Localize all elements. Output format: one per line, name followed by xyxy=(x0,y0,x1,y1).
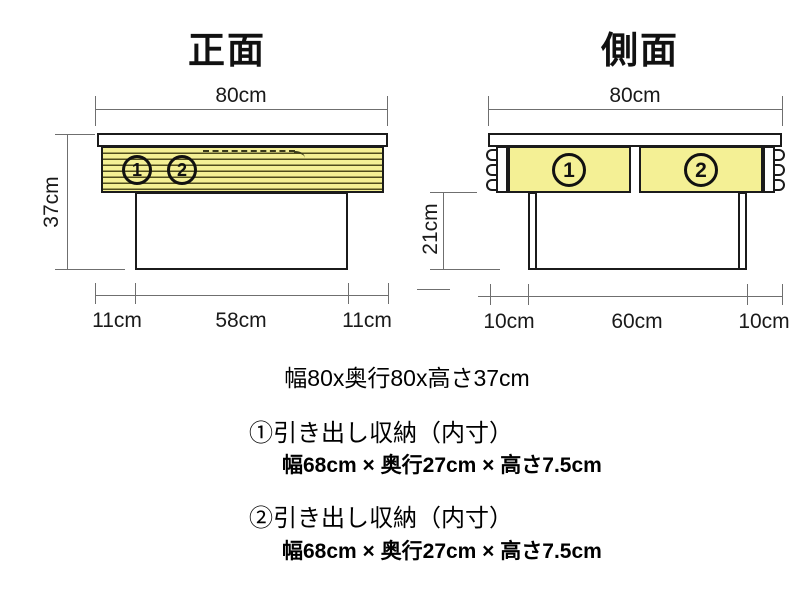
tick-mark xyxy=(490,284,491,305)
tick-mark xyxy=(387,96,388,126)
drawer1-heading: ①引き出し収納（内寸） xyxy=(249,413,513,448)
front-bottom-center-label: 58cm xyxy=(211,309,271,333)
side-bottom-right-label: 10cm xyxy=(734,310,794,334)
tick-mark xyxy=(388,283,389,304)
front-leg-panel xyxy=(135,192,348,270)
side-bottom-dimension-line xyxy=(478,296,782,297)
extension-line xyxy=(417,289,450,290)
tick-mark xyxy=(528,284,529,305)
rail-bump xyxy=(774,164,785,176)
side-bottom-center-label: 60cm xyxy=(607,310,667,334)
side-height-label: 21cm xyxy=(419,189,443,269)
tick-mark xyxy=(488,96,489,126)
front-view-title: 正面 xyxy=(147,20,307,74)
front-top-width-label: 80cm xyxy=(211,84,271,108)
side-drawer2-number-badge: 2 xyxy=(684,153,718,187)
rail-bump xyxy=(774,179,785,191)
rail-bump xyxy=(774,149,785,161)
drawer2-inner-dimensions: 幅68cm × 奥行27cm × 高さ7.5cm xyxy=(282,535,602,565)
tick-mark xyxy=(430,269,500,270)
drawer2-heading: ②引き出し収納（内寸） xyxy=(249,498,513,533)
side-tabletop xyxy=(488,133,782,147)
side-view-title: 側面 xyxy=(560,20,720,74)
tick-mark xyxy=(782,284,783,305)
tick-mark xyxy=(55,269,125,270)
front-top-dimension-line xyxy=(95,109,387,110)
side-right-leg xyxy=(738,192,747,270)
side-drawer1-number-badge: 1 xyxy=(552,153,586,187)
front-bottom-dimension-line xyxy=(95,295,388,296)
tick-mark xyxy=(782,96,783,126)
front-height-label: 37cm xyxy=(40,162,64,242)
tick-mark xyxy=(348,283,349,304)
side-left-rail xyxy=(496,146,508,193)
side-top-dimension-line xyxy=(488,109,782,110)
side-bottom-left-label: 10cm xyxy=(479,310,539,334)
tick-mark xyxy=(747,284,748,305)
furniture-dimension-diagram: 正面 80cm 1 2 37cm 11cm 58cm 11cm 側面 80cm … xyxy=(0,0,800,600)
overall-size-text: 幅80x奥行80x高さ37cm xyxy=(200,359,614,393)
drawer-leader-dashed-line xyxy=(203,150,295,152)
front-bottom-left-label: 11cm xyxy=(87,309,147,333)
side-height-dimension-line xyxy=(443,192,444,270)
front-bottom-right-label: 11cm xyxy=(337,309,397,333)
side-right-rail xyxy=(763,146,775,193)
tick-mark xyxy=(135,283,136,304)
tick-mark xyxy=(95,283,96,304)
tick-mark xyxy=(55,134,95,135)
side-top-width-label: 80cm xyxy=(605,84,665,108)
front-tabletop xyxy=(97,133,388,147)
front-height-dimension-line xyxy=(67,134,68,269)
side-base-bottom-edge xyxy=(529,268,747,270)
side-left-leg xyxy=(528,192,537,270)
drawer1-inner-dimensions: 幅68cm × 奥行27cm × 高さ7.5cm xyxy=(282,449,602,479)
front-drawer1-number-badge: 1 xyxy=(122,155,152,185)
front-drawer2-number-badge: 2 xyxy=(167,155,197,185)
tick-mark xyxy=(95,96,96,126)
